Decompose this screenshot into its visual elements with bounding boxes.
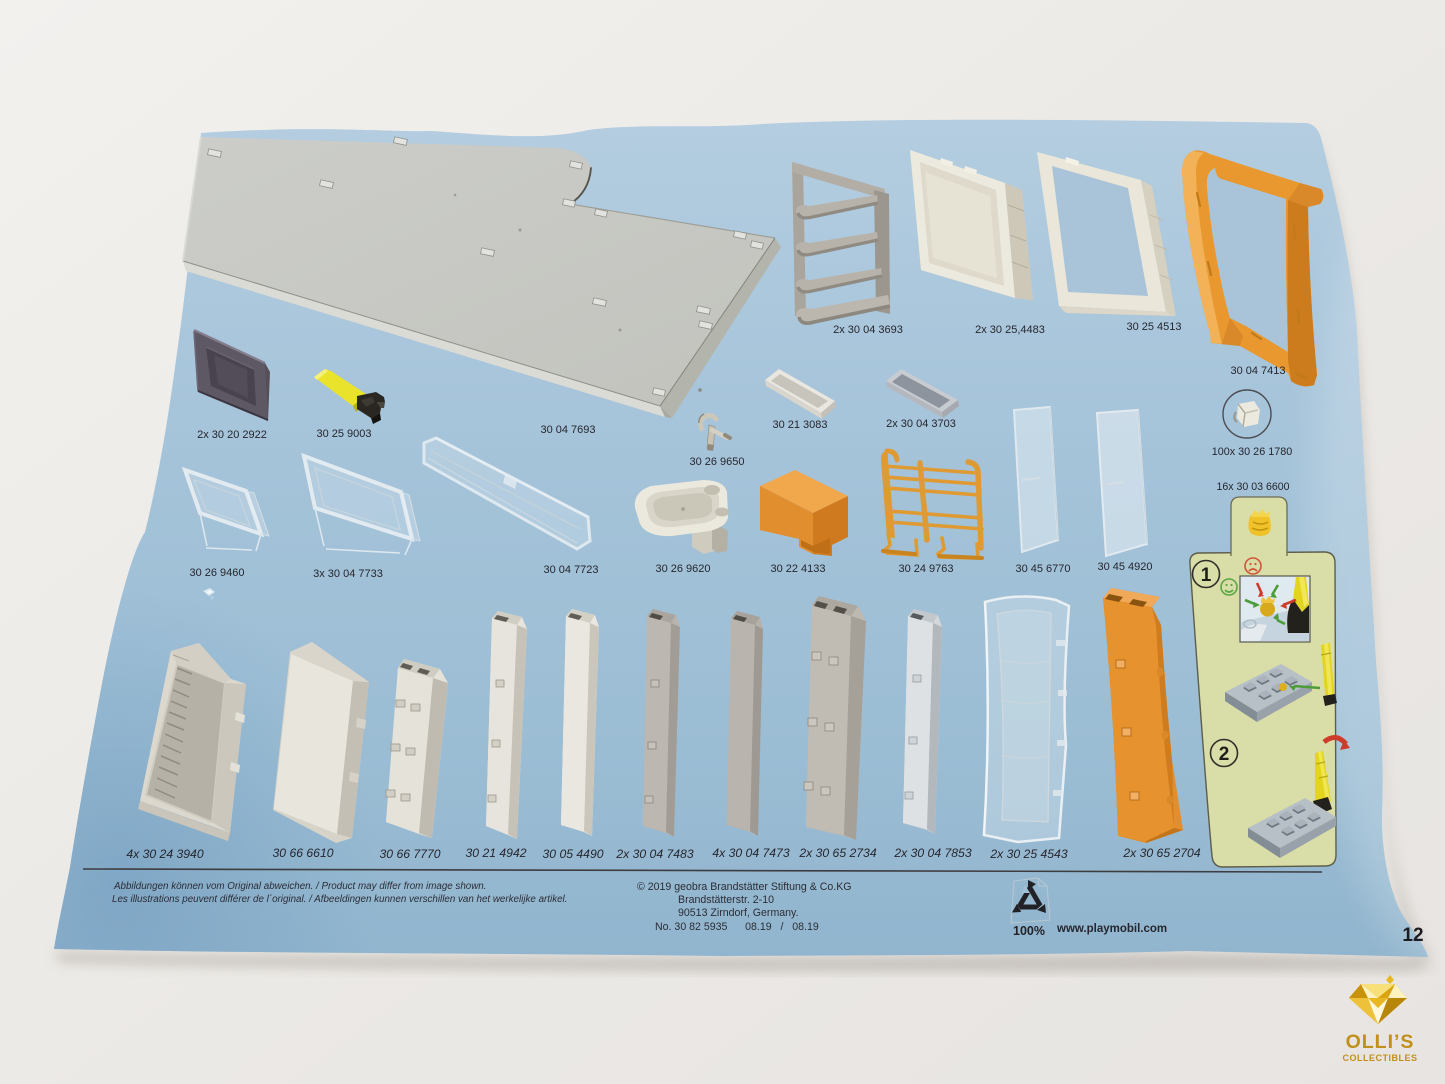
svg-text:2x 30 04 7483: 2x 30 04 7483 — [615, 847, 693, 861]
svg-text:30 04 7723: 30 04 7723 — [543, 564, 598, 576]
svg-text:30 26 9460: 30 26 9460 — [189, 567, 244, 579]
svg-text:2x 30 04 7853: 2x 30 04 7853 — [893, 846, 971, 860]
svg-text:2x 30 65 2704: 2x 30 65 2704 — [1122, 846, 1200, 860]
svg-text:30 26 9650: 30 26 9650 — [689, 456, 744, 468]
svg-text:30 25 9003: 30 25 9003 — [316, 428, 371, 440]
svg-text:30 66 7770: 30 66 7770 — [380, 847, 441, 861]
svg-text:2x 30 25 4543: 2x 30 25 4543 — [989, 847, 1067, 861]
svg-text:2x 30 25,4483: 2x 30 25,4483 — [975, 324, 1045, 336]
svg-text:3x 30 04 7733: 3x 30 04 7733 — [313, 568, 383, 580]
svg-text:30 21 3083: 30 21 3083 — [772, 419, 827, 431]
svg-text:www.playmobil.com: www.playmobil.com — [1056, 923, 1167, 935]
svg-text:2x 30 65 2734: 2x 30 65 2734 — [798, 846, 876, 860]
svg-text:2: 2 — [1219, 744, 1230, 765]
svg-text:30 22 4133: 30 22 4133 — [770, 563, 825, 575]
svg-text:30 04 7693: 30 04 7693 — [540, 424, 595, 436]
svg-text:4x 30 24 3940: 4x 30 24 3940 — [126, 847, 203, 861]
svg-text:2x 30 04 3693: 2x 30 04 3693 — [833, 324, 903, 336]
svg-text:© 2019 geobra Brandstätter Sti: © 2019 geobra Brandstätter Stiftung & Co… — [637, 881, 852, 893]
svg-text:30 66 6610: 30 66 6610 — [273, 846, 334, 860]
svg-text:4x 30 04 7473: 4x 30 04 7473 — [712, 846, 789, 860]
svg-text:2x 30 20 2922: 2x 30 20 2922 — [197, 429, 267, 441]
svg-text:100%: 100% — [1013, 924, 1045, 938]
svg-text:Les illustrations peuvent diff: Les illustrations peuvent différer de l´… — [112, 894, 567, 905]
svg-text:12: 12 — [1402, 925, 1423, 946]
svg-text:30 45 6770: 30 45 6770 — [1015, 563, 1070, 575]
svg-text:Abbildungen können vom Origina: Abbildungen können vom Original abweiche… — [113, 881, 486, 892]
svg-text:30 05 4490: 30 05 4490 — [543, 847, 604, 861]
svg-text:90513 Zirndorf, Germany.: 90513 Zirndorf, Germany. — [678, 907, 799, 919]
svg-text:No. 30 82 5935 08.19 /: No. 30 82 5935 08.19 / 08.19 — [655, 921, 819, 933]
svg-text:30 26 9620: 30 26 9620 — [655, 563, 710, 575]
svg-text:16x 30 03 6600: 16x 30 03 6600 — [1216, 481, 1289, 493]
svg-text:30 04 7413: 30 04 7413 — [1230, 365, 1285, 377]
svg-text:30 25 4513: 30 25 4513 — [1126, 321, 1181, 333]
svg-text:30 21 4942: 30 21 4942 — [466, 846, 527, 860]
svg-text:2x 30 04 3703: 2x 30 04 3703 — [886, 418, 956, 430]
svg-text:1: 1 — [1201, 565, 1212, 586]
svg-text:COLLECTIBLES: COLLECTIBLES — [1343, 1053, 1418, 1063]
svg-text:100x 30 26 1780: 100x 30 26 1780 — [1212, 446, 1292, 458]
svg-text:Brandstätterstr. 2-10: Brandstätterstr. 2-10 — [678, 894, 774, 906]
svg-text:OLLI’S: OLLI’S — [1346, 1031, 1415, 1053]
svg-text:30 24 9763: 30 24 9763 — [898, 563, 953, 575]
svg-text:30 45 4920: 30 45 4920 — [1097, 561, 1152, 573]
